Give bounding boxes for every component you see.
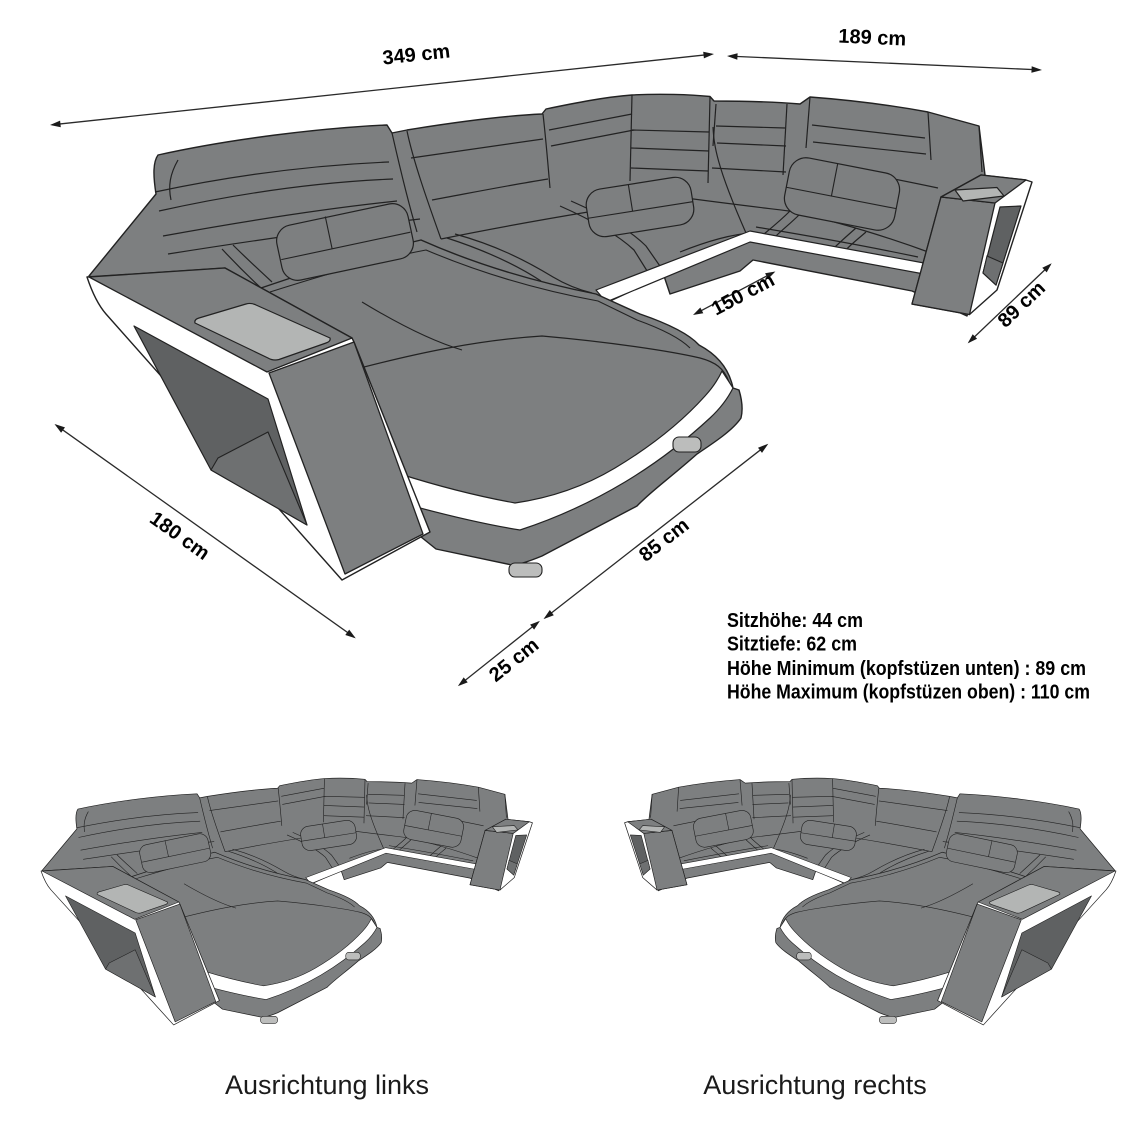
svg-text:89 cm: 89 cm [994, 277, 1050, 332]
svg-text:Sitztiefe: 62 cm: Sitztiefe: 62 cm [727, 634, 857, 656]
svg-text:Höhe Maximum (kopfstüzen oben): Höhe Maximum (kopfstüzen oben) : 110 cm [727, 681, 1090, 703]
svg-text:Höhe Minimum (kopfstüzen unten: Höhe Minimum (kopfstüzen unten) : 89 cm [727, 658, 1086, 680]
svg-text:349 cm: 349 cm [381, 40, 451, 69]
svg-text:Sitzhöhe: 44 cm: Sitzhöhe: 44 cm [727, 610, 863, 632]
svg-text:Ausrichtung links: Ausrichtung links [225, 1070, 429, 1100]
svg-text:Ausrichtung rechts: Ausrichtung rechts [703, 1070, 927, 1100]
svg-text:180 cm: 180 cm [145, 507, 213, 564]
svg-text:189 cm: 189 cm [838, 26, 907, 51]
